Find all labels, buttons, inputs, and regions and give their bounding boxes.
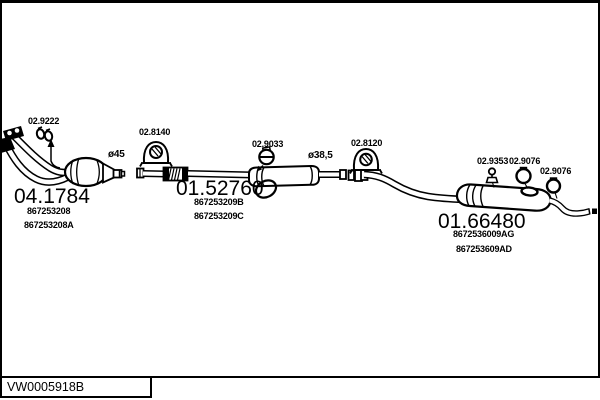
- exhaust-line-art: [0, 0, 600, 400]
- rear-part-number-2: 867253609AD: [456, 245, 512, 254]
- cat-outlet-pipe: [114, 170, 125, 178]
- front-silencer-pipe: [143, 174, 166, 175]
- centre-assembly-code: 01.52760: [176, 178, 264, 199]
- rubber-hanger-icon: [140, 142, 172, 167]
- rubber-hanger-icon-2: [350, 149, 382, 174]
- clamp-pair-icon: [36, 127, 53, 142]
- drawing-number-box: VW0005918B: [0, 376, 152, 398]
- catalytic-converter: [65, 158, 114, 186]
- tailpipe-end-marker: [592, 209, 597, 215]
- diameter-label-45: ø45: [108, 150, 125, 160]
- diameter-label-38-5: ø38,5: [308, 151, 333, 161]
- centre-outlet-pipe: [319, 170, 346, 179]
- exhaust-system-diagram: 02.9222 04.1784 867253208 867253208A ø45…: [0, 0, 600, 400]
- rubber-hanger-code-1: 02.8140: [139, 128, 170, 137]
- hanger-ring-code-1: 02.9076: [509, 157, 540, 166]
- front-part-number-1: 867253208: [27, 207, 70, 216]
- front-assembly-code: 04.1784: [14, 186, 90, 207]
- hanger-ring-icon-1: [517, 168, 531, 189]
- tailpipe: [550, 201, 590, 215]
- pipe-joint-sleeve: [137, 169, 144, 178]
- centre-pipe: [188, 174, 253, 176]
- rear-silencer: [457, 184, 551, 210]
- front-part-number-2: 867253208A: [24, 221, 74, 230]
- rear-pipe: [364, 175, 464, 200]
- centre-part-number-2: 867253209C: [194, 212, 244, 221]
- rear-part-number-1: 8672536009AG: [453, 230, 514, 239]
- rubber-hanger-code-2: 02.8120: [351, 139, 382, 148]
- muffler-clamp-code: 02.9033: [252, 140, 283, 149]
- centre-part-number-1: 867253209B: [194, 198, 244, 207]
- hanger-pin-code: 02.9353: [477, 157, 508, 166]
- front-downpipes: [6, 134, 72, 182]
- drawing-number: VW0005918B: [7, 380, 84, 394]
- hanger-ring-code-2: 02.9076: [540, 167, 571, 176]
- clamp-pair-code: 02.9222: [28, 117, 59, 126]
